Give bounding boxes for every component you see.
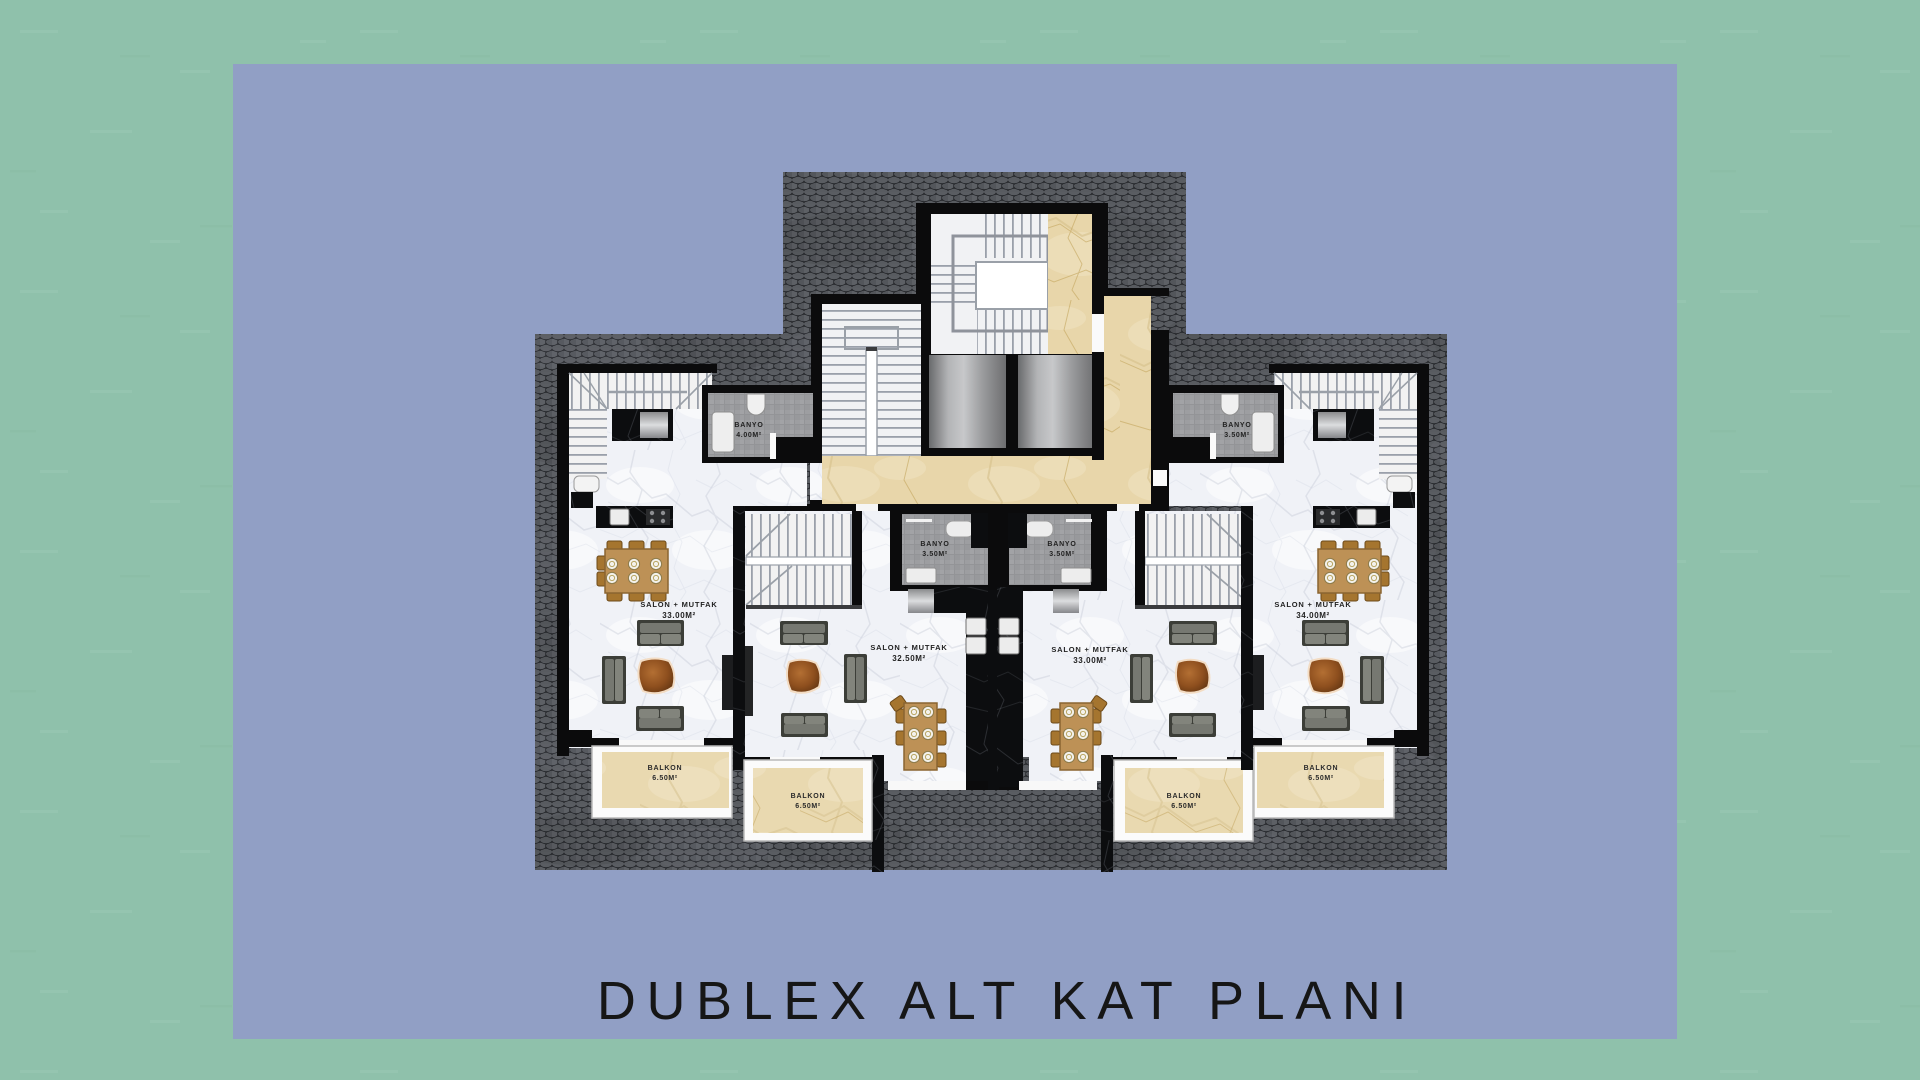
svg-text:33.00M²: 33.00M² xyxy=(662,611,696,620)
svg-text:3.50M²: 3.50M² xyxy=(1049,551,1074,558)
svg-text:32.50M²: 32.50M² xyxy=(892,654,926,663)
svg-text:33.00M²: 33.00M² xyxy=(1073,656,1107,665)
svg-text:SALON + MUTFAK: SALON + MUTFAK xyxy=(1274,600,1351,609)
svg-text:6.50M²: 6.50M² xyxy=(1308,775,1333,782)
svg-text:BALKON: BALKON xyxy=(648,765,683,772)
svg-text:SALON + MUTFAK: SALON + MUTFAK xyxy=(640,600,717,609)
svg-text:BALKON: BALKON xyxy=(791,793,826,800)
svg-text:3.50M²: 3.50M² xyxy=(922,551,947,558)
svg-text:BANYO: BANYO xyxy=(734,422,763,429)
svg-text:4.00M²: 4.00M² xyxy=(736,432,761,439)
svg-text:SALON + MUTFAK: SALON + MUTFAK xyxy=(870,643,947,652)
svg-text:6.50M²: 6.50M² xyxy=(1171,803,1196,810)
svg-text:BALKON: BALKON xyxy=(1167,793,1202,800)
svg-text:BANYO: BANYO xyxy=(1047,541,1076,548)
svg-text:6.50M²: 6.50M² xyxy=(795,803,820,810)
svg-text:34.00M²: 34.00M² xyxy=(1296,611,1330,620)
svg-text:DUBLEX ALT KAT PLANI: DUBLEX ALT KAT PLANI xyxy=(597,971,1417,1031)
svg-text:6.50M²: 6.50M² xyxy=(652,775,677,782)
svg-text:BALKON: BALKON xyxy=(1304,765,1339,772)
svg-text:3.50M²: 3.50M² xyxy=(1224,432,1249,439)
svg-text:BANYO: BANYO xyxy=(920,541,949,548)
svg-text:SALON + MUTFAK: SALON + MUTFAK xyxy=(1051,645,1128,654)
svg-text:BANYO: BANYO xyxy=(1222,422,1251,429)
